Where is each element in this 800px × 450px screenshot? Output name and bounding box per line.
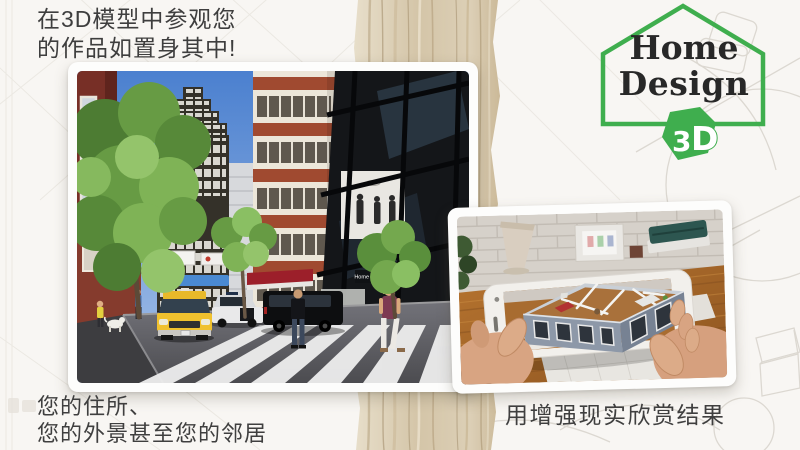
city-caption-line-2: 您的外景甚至您的邻居 <box>37 420 267 447</box>
badge-letter: D <box>691 119 718 158</box>
headline-line-2: 的作品如置身其中! <box>37 34 236 63</box>
city-caption: 您的住所、 您的外景甚至您的邻居 <box>37 393 267 448</box>
badge-digit: 3 <box>672 125 691 158</box>
city-caption-line-1: 您的住所、 <box>37 393 267 420</box>
city-photo-illustration: Home Design <box>77 71 469 383</box>
city-photo: Home Design <box>68 62 478 392</box>
ar-caption: 用增强现实欣赏结果 <box>505 396 726 430</box>
ar-photo <box>447 200 736 394</box>
headline: 在3D模型中参观您 的作品如置身其中! <box>37 5 236 62</box>
logo-word-home: Home <box>588 28 780 67</box>
headline-line-1: 在3D模型中参观您 <box>37 5 236 34</box>
home-design-3d-logo: 3 D Home Design <box>588 2 780 166</box>
ar-photo-illustration <box>457 209 728 384</box>
logo-word-design: Design <box>588 64 780 103</box>
logo-3d-badge: 3 D <box>662 107 718 160</box>
